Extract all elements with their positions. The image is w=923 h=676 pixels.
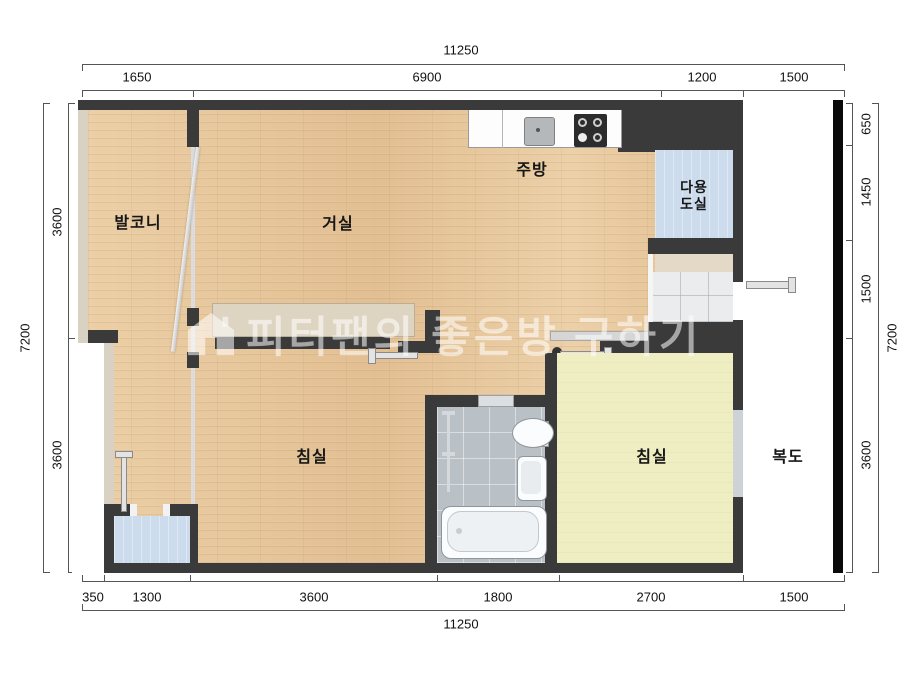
dim-left-seg: 3600: [50, 208, 65, 237]
door-jamb: [130, 504, 137, 516]
dim-right-seg: 1500: [859, 275, 874, 304]
small-balcony-floor: [114, 516, 190, 563]
bathtub-drain: [456, 528, 462, 534]
dim-left-total: 7200: [18, 324, 33, 353]
dim-bottom-seg: 1300: [133, 590, 162, 605]
dim-left-seg: 3600: [50, 441, 65, 470]
wall: [190, 504, 198, 563]
dim-top-seg: 6900: [413, 70, 442, 85]
burner: [593, 133, 602, 142]
laundry-pipe: [115, 451, 133, 458]
entry-door-handle: [788, 277, 796, 293]
dim-top-total: 11250: [443, 43, 478, 58]
balcony-window-wall: [78, 100, 88, 343]
dim-line: [43, 103, 44, 573]
burner: [578, 133, 587, 142]
dim-top-seg: 1200: [688, 70, 717, 85]
corridor-wall-bar: [833, 100, 843, 573]
dim-line: [82, 610, 845, 611]
dim-bottom-total: 11250: [443, 617, 478, 632]
dim-line: [82, 64, 845, 65]
dim-top-seg: 1500: [780, 70, 809, 85]
entry-door-handle: [746, 281, 794, 289]
wall: [733, 320, 743, 410]
kitchen-sink: [524, 117, 555, 146]
sink-basin: [521, 461, 541, 494]
wall: [425, 395, 437, 563]
wall: [618, 100, 743, 152]
watermark: 피터팬의 좋은방 구하기: [188, 303, 702, 365]
entry-shoe-cabinet: [655, 254, 733, 272]
burner: [578, 118, 587, 127]
window: [733, 410, 743, 497]
room-label-bedroom-left: 침실: [296, 443, 327, 467]
wall: [78, 100, 630, 110]
dim-bottom-seg: 1800: [484, 590, 513, 605]
room-label-kitchen: 주방: [516, 156, 547, 180]
wall: [104, 504, 114, 563]
dim-top-seg: 1650: [123, 70, 152, 85]
floorplan-canvas: 11250 1650 6900 1200 1500 350 1300 3600 …: [0, 0, 923, 676]
wall: [733, 497, 743, 563]
burner: [593, 118, 602, 127]
house-icon: [188, 312, 234, 356]
dim-bottom-seg: 1500: [780, 590, 809, 605]
room-label-bedroom-right: 침실: [636, 443, 667, 467]
room-label-living: 거실: [322, 210, 353, 234]
laundry-pipe: [121, 455, 127, 512]
dim-bottom-seg: 350: [82, 590, 104, 605]
room-label-balcony: 발코니: [114, 209, 161, 233]
bathroom-door: [478, 395, 514, 407]
dim-right-seg: 3600: [859, 441, 874, 470]
dim-bottom-seg: 3600: [300, 590, 329, 605]
watermark-text: 피터팬의 좋은방 구하기: [246, 303, 702, 365]
dim-bottom-seg: 2700: [637, 590, 666, 605]
dim-line: [878, 103, 879, 573]
wall: [733, 150, 743, 282]
dim-right-seg: 650: [859, 113, 874, 135]
dim-right-seg: 1450: [859, 178, 874, 207]
light-wall: [104, 343, 114, 504]
dim-line: [82, 581, 845, 582]
shower-head: [442, 411, 455, 415]
door-jamb: [163, 504, 170, 516]
sink-drain: [536, 128, 540, 132]
utility-line2: 도실: [680, 196, 708, 212]
toilet: [512, 418, 554, 448]
exterior-notch: [72, 343, 104, 575]
dim-line: [82, 90, 845, 91]
wall: [104, 563, 743, 573]
room-label-utility: 다용 도실: [680, 179, 708, 213]
shower-tap: [442, 452, 455, 456]
room-label-corridor: 복도: [772, 443, 803, 467]
kitchen-counter-divider: [502, 106, 503, 148]
wall: [648, 238, 743, 254]
dim-right-total: 7200: [885, 324, 900, 353]
utility-line1: 다용: [680, 179, 708, 195]
